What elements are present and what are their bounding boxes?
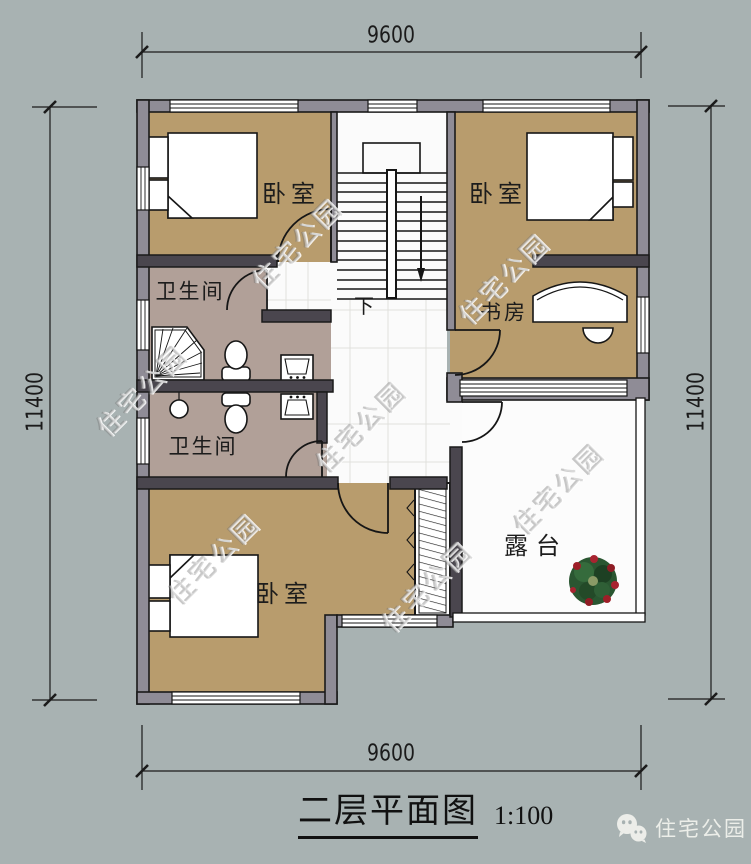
nightstand (148, 180, 168, 210)
bed-top-right (527, 133, 613, 220)
toilet-lower-bowl (225, 405, 247, 433)
nightstand (613, 137, 633, 180)
room-label-study: 书房 (480, 303, 528, 324)
wall-bedroomTR-study (533, 255, 649, 267)
room-label-bathroom-lower: 卫生间 (169, 437, 238, 458)
wall-hall-bedroom2 (390, 477, 447, 489)
floor-plan-drawing (0, 0, 751, 864)
wall-bath-divider (137, 380, 333, 392)
wall-step (325, 615, 337, 704)
floor-plan-page: { "title": { "text": "二层平面图", "scale": "… (0, 0, 751, 864)
scale-label: 1:100 (494, 803, 553, 829)
room-label-bedroom-top-right: 卧室 (469, 183, 527, 207)
wall-bathL-right (317, 392, 327, 443)
parapet-bottom (453, 613, 645, 622)
room-label-bedroom-bottom: 卧室 (255, 583, 313, 607)
nightstand (148, 601, 170, 631)
floor-drain (170, 400, 188, 418)
room-label-bathroom-upper: 卫生间 (156, 282, 225, 303)
stair-center-rail (387, 170, 396, 298)
dim-label-top: 9600 (367, 25, 415, 48)
room-label-terrace: 露台 (504, 535, 568, 559)
bed-top-left (168, 133, 257, 218)
wall-hall-bedroom (137, 477, 338, 489)
logo-text: 住宅公园 (655, 819, 747, 840)
wardrobe-hangers (419, 487, 446, 613)
dim-label-left: 11400 (25, 372, 48, 432)
parapet-right (636, 398, 645, 615)
dim-label-right: 11400 (686, 372, 709, 432)
brand-logo: 住宅公园 (615, 813, 747, 845)
wall-nook (262, 310, 331, 322)
study-desk (533, 282, 627, 322)
nightstand (148, 565, 170, 598)
wechat-icon (615, 813, 649, 845)
wall-right (637, 100, 649, 400)
title-block: 二层平面图 1:100 (298, 795, 553, 839)
dim-label-bottom: 9600 (367, 743, 415, 766)
wall-bedroomTL-bath (137, 255, 277, 267)
toilet-upper-bowl (225, 341, 247, 369)
toilet-lower-tank (222, 393, 250, 406)
nightstand (613, 182, 633, 207)
nightstand (148, 137, 168, 178)
stair-down-label: 下 (354, 297, 374, 317)
room-label-bedroom-top-left: 卧室 (262, 183, 320, 207)
wall-terrace-left (450, 447, 462, 617)
bed-bottom (170, 555, 258, 637)
wall-stair-right (447, 112, 455, 330)
page-title: 二层平面图 (298, 795, 478, 839)
floor-hall-nook (266, 262, 331, 312)
